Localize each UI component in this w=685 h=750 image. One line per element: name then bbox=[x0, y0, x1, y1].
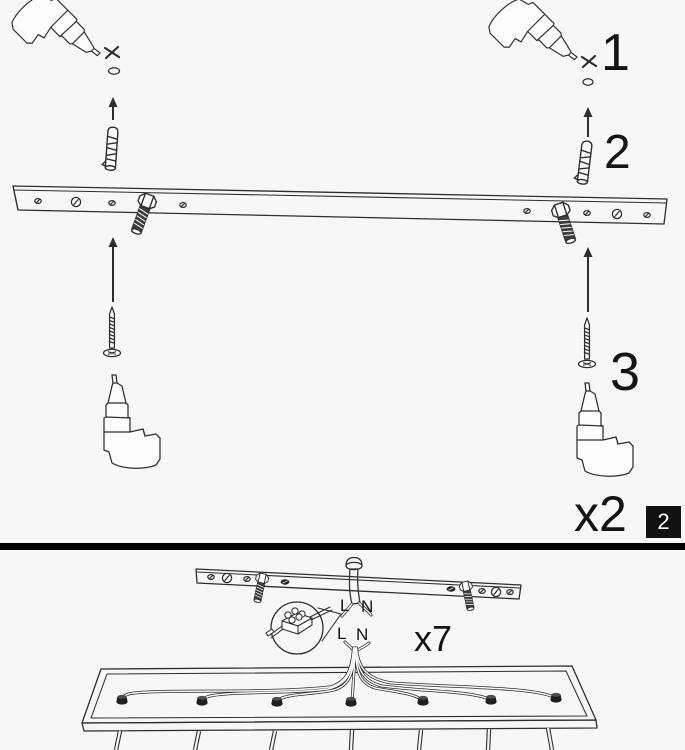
step-number: 2 bbox=[657, 509, 669, 534]
wall-plug-icon-left bbox=[102, 127, 119, 171]
assembly-diagram: 1 2 bbox=[0, 0, 685, 750]
drill-mark-x-left bbox=[105, 47, 119, 58]
pilot-hole-left bbox=[109, 68, 120, 74]
supply-live-label: L bbox=[340, 596, 349, 615]
arrow-up-icon-left-mid bbox=[109, 237, 118, 302]
screw-icon-right bbox=[579, 318, 596, 368]
panel-divider bbox=[0, 543, 685, 550]
supply-neutral-label: N bbox=[361, 597, 373, 616]
callout-3: 3 bbox=[610, 342, 640, 402]
pilot-hole-right bbox=[583, 79, 593, 85]
canopy-tray bbox=[82, 666, 597, 731]
fixture-neutral-label: N bbox=[356, 625, 368, 644]
magnifier-detail bbox=[266, 602, 341, 654]
pendant-cords bbox=[116, 728, 552, 750]
wire-harness bbox=[122, 648, 556, 702]
arrow-up-icon-right-top bbox=[584, 107, 593, 137]
mounting-bracket-bar bbox=[13, 186, 667, 246]
drill-icon-bottom-left bbox=[104, 375, 160, 468]
drill-icon-top-right bbox=[484, 0, 582, 89]
quantity-x7-label: x7 bbox=[414, 618, 452, 659]
fixture-live-label: L bbox=[337, 624, 346, 643]
cable-grommets bbox=[116, 693, 561, 707]
screw-icon-left bbox=[104, 307, 121, 357]
quantity-x2-label: x2 bbox=[574, 486, 627, 542]
wall-plug-icon-right bbox=[574, 140, 593, 184]
drill-icon-top-left bbox=[7, 0, 105, 85]
hanger-bolt-left bbox=[127, 192, 158, 237]
arrow-up-icon-left-top bbox=[109, 97, 118, 120]
hanger-bolt-right bbox=[550, 201, 579, 246]
screw-head-right bbox=[447, 586, 456, 591]
instruction-sheet: 1 2 bbox=[0, 0, 685, 750]
callout-2: 2 bbox=[604, 126, 631, 179]
arrow-up-icon-right-mid bbox=[584, 247, 593, 312]
screw-head-left bbox=[281, 579, 290, 584]
drill-mark-x-right bbox=[582, 56, 596, 67]
wiring-panel: L N L N x7 bbox=[82, 558, 597, 750]
fixed-bolt-left bbox=[251, 572, 269, 603]
callout-1: 1 bbox=[601, 24, 630, 82]
step-2-panel: 1 2 bbox=[7, 0, 681, 542]
step-number-badge: 2 bbox=[646, 506, 681, 538]
